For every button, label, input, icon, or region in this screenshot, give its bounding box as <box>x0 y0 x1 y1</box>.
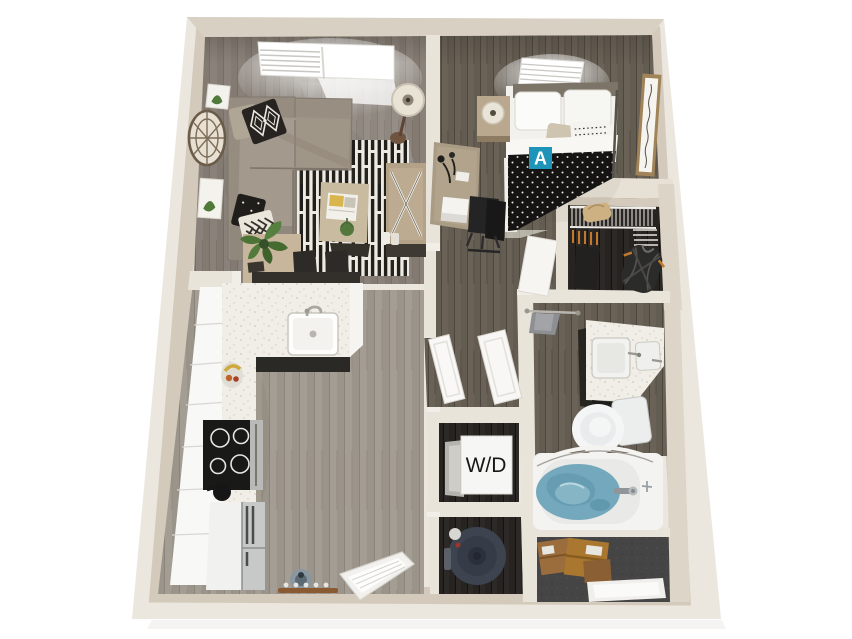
svg-text:W/D: W/D <box>466 454 507 477</box>
svg-text:A: A <box>534 149 547 169</box>
